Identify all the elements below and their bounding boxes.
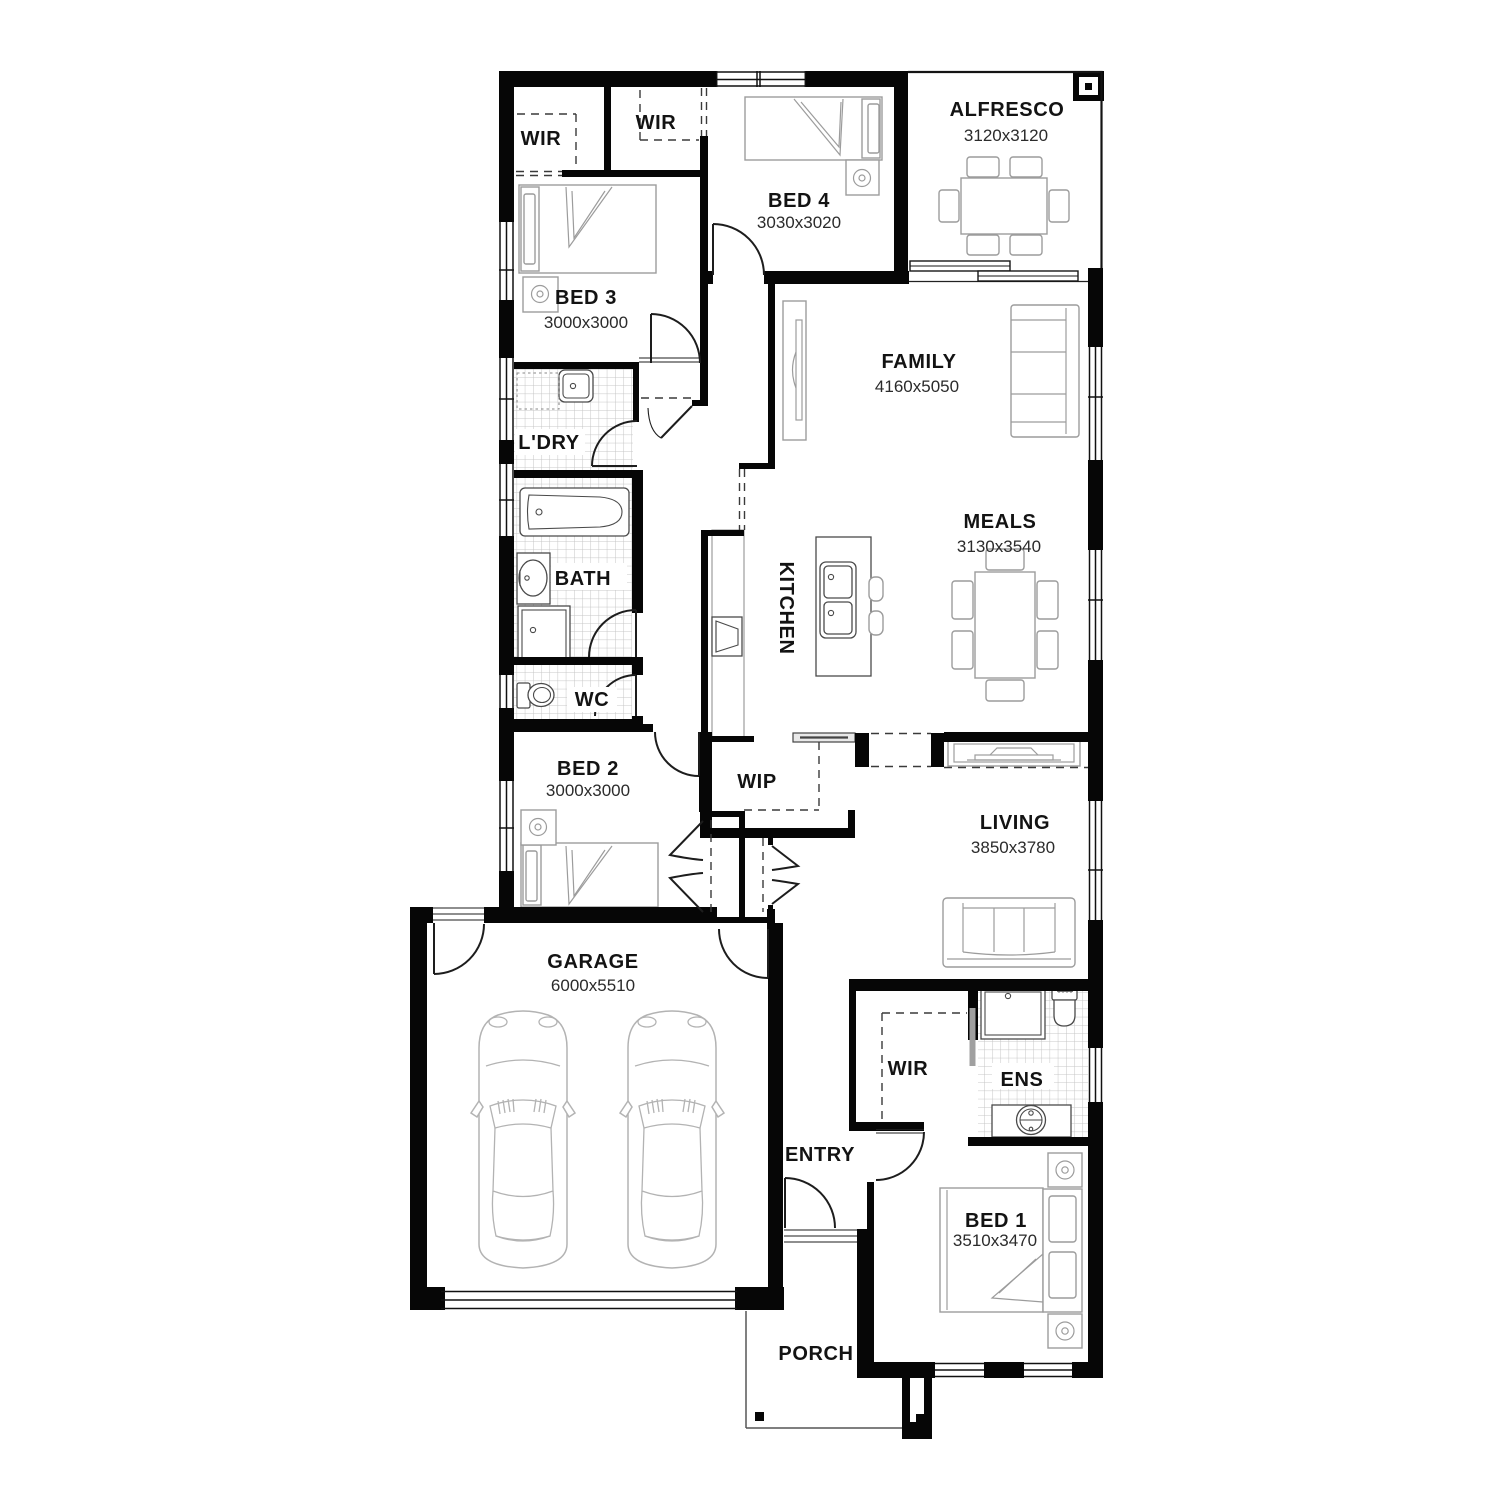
svg-text:BED 1: BED 1	[965, 1210, 1027, 1232]
svg-text:MEALS: MEALS	[964, 511, 1037, 533]
svg-text:3510x3470: 3510x3470	[953, 1231, 1037, 1250]
svg-text:3120x3120: 3120x3120	[964, 126, 1048, 145]
svg-text:BED 3: BED 3	[555, 287, 617, 309]
svg-text:4160x5050: 4160x5050	[875, 377, 959, 396]
svg-text:FAMILY: FAMILY	[881, 351, 956, 373]
svg-text:PORCH: PORCH	[778, 1343, 853, 1365]
svg-text:3030x3020: 3030x3020	[757, 213, 841, 232]
svg-text:LIVING: LIVING	[980, 812, 1050, 834]
svg-text:WIR: WIR	[521, 128, 562, 150]
svg-text:3850x3780: 3850x3780	[971, 838, 1055, 857]
svg-text:WIR: WIR	[888, 1058, 929, 1080]
svg-text:BED 2: BED 2	[557, 758, 619, 780]
svg-text:WIP: WIP	[737, 771, 777, 793]
svg-text:WIR: WIR	[636, 112, 677, 134]
svg-text:L'DRY: L'DRY	[518, 432, 580, 454]
svg-text:3000x3000: 3000x3000	[546, 781, 630, 800]
svg-text:ENS: ENS	[1001, 1069, 1044, 1091]
svg-text:3130x3540: 3130x3540	[957, 537, 1041, 556]
svg-text:ENTRY: ENTRY	[785, 1144, 855, 1166]
svg-text:WC: WC	[575, 689, 610, 711]
svg-text:BED 4: BED 4	[768, 190, 830, 212]
svg-text:KITCHEN: KITCHEN	[775, 561, 797, 654]
svg-text:BATH: BATH	[555, 568, 611, 590]
svg-text:6000x5510: 6000x5510	[551, 976, 635, 995]
svg-text:GARAGE: GARAGE	[547, 951, 638, 973]
svg-text:ALFRESCO: ALFRESCO	[950, 99, 1065, 121]
svg-text:3000x3000: 3000x3000	[544, 313, 628, 332]
